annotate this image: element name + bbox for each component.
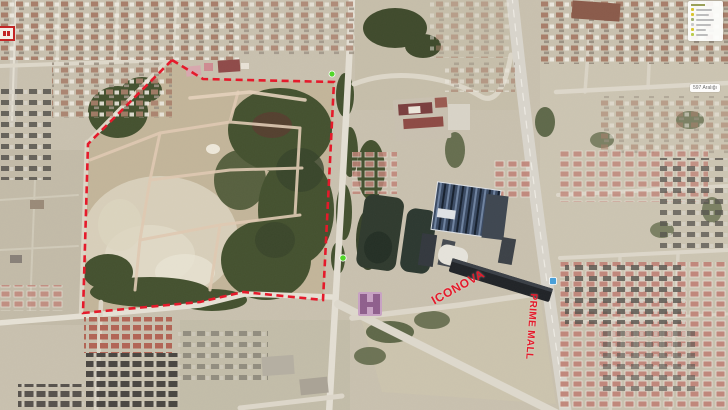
legend-row (691, 23, 721, 26)
road-sign (0, 26, 15, 41)
legend-label-bar (696, 24, 711, 26)
legend-row (691, 18, 721, 21)
legend-dot-icon (691, 33, 694, 36)
legend-row (691, 28, 721, 31)
green-poi-marker-top (329, 71, 335, 77)
legend-dot-icon (691, 18, 694, 21)
legend-dot-icon (691, 13, 694, 16)
street-label: 597 Aralığı (690, 84, 720, 92)
legend-label-bar (696, 14, 709, 16)
legend-label-bar (696, 9, 712, 11)
legend-dot-icon (691, 23, 694, 26)
legend-row (691, 13, 721, 16)
grain-overlay (0, 0, 728, 410)
legend-title-bar (691, 4, 705, 6)
satellite-map: ICONOVA PRIME MALL 597 Aralığı (0, 0, 728, 410)
map-legend (688, 1, 723, 41)
legend-row (691, 33, 721, 36)
legend-label-bar (696, 34, 708, 36)
legend-label-bar (696, 29, 706, 31)
blue-poi-marker (550, 278, 557, 285)
legend-dot-icon (691, 28, 694, 31)
map-image (0, 0, 728, 410)
legend-label-bar (696, 19, 714, 21)
legend-dot-icon (691, 8, 694, 11)
legend-row (691, 8, 721, 11)
green-poi-marker-mid (340, 255, 346, 261)
